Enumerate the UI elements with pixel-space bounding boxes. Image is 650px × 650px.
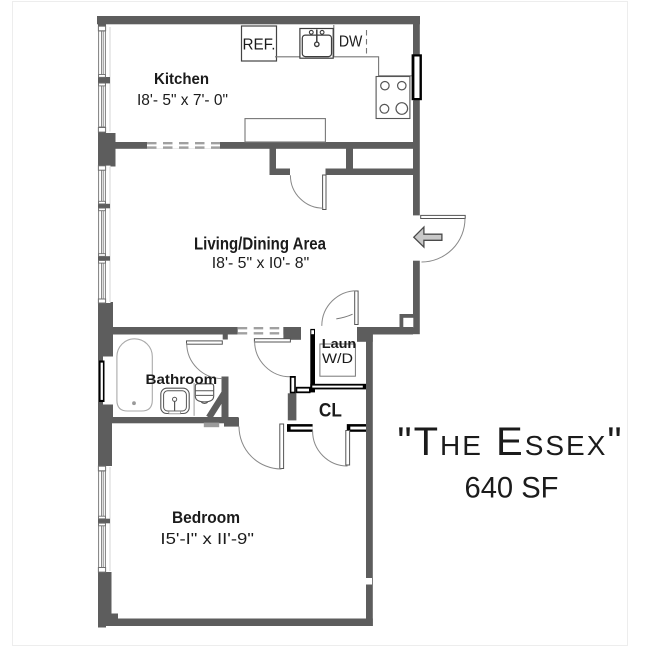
- svg-text:Living/Dining Area: Living/Dining Area: [194, 234, 326, 254]
- svg-text:I8'- 5" x 7'- 0": I8'- 5" x 7'- 0": [137, 92, 228, 109]
- svg-text:Bathroom: Bathroom: [146, 372, 218, 387]
- svg-text:W/D: W/D: [322, 350, 353, 366]
- svg-text:640 SF: 640 SF: [465, 472, 559, 505]
- svg-text:Kitchen: Kitchen: [154, 71, 209, 88]
- svg-text:Bedroom: Bedroom: [172, 508, 240, 527]
- svg-text:"The Essex": "The Essex": [397, 420, 623, 464]
- svg-text:CL: CL: [319, 401, 342, 422]
- svg-text:I8'- 5" x I0'- 8": I8'- 5" x I0'- 8": [212, 255, 310, 272]
- svg-text:DW: DW: [339, 34, 363, 51]
- svg-text:I5'-I" x II'-9": I5'-I" x II'-9": [160, 531, 254, 548]
- svg-text:REF.: REF.: [243, 37, 276, 54]
- svg-text:Laun: Laun: [322, 337, 357, 351]
